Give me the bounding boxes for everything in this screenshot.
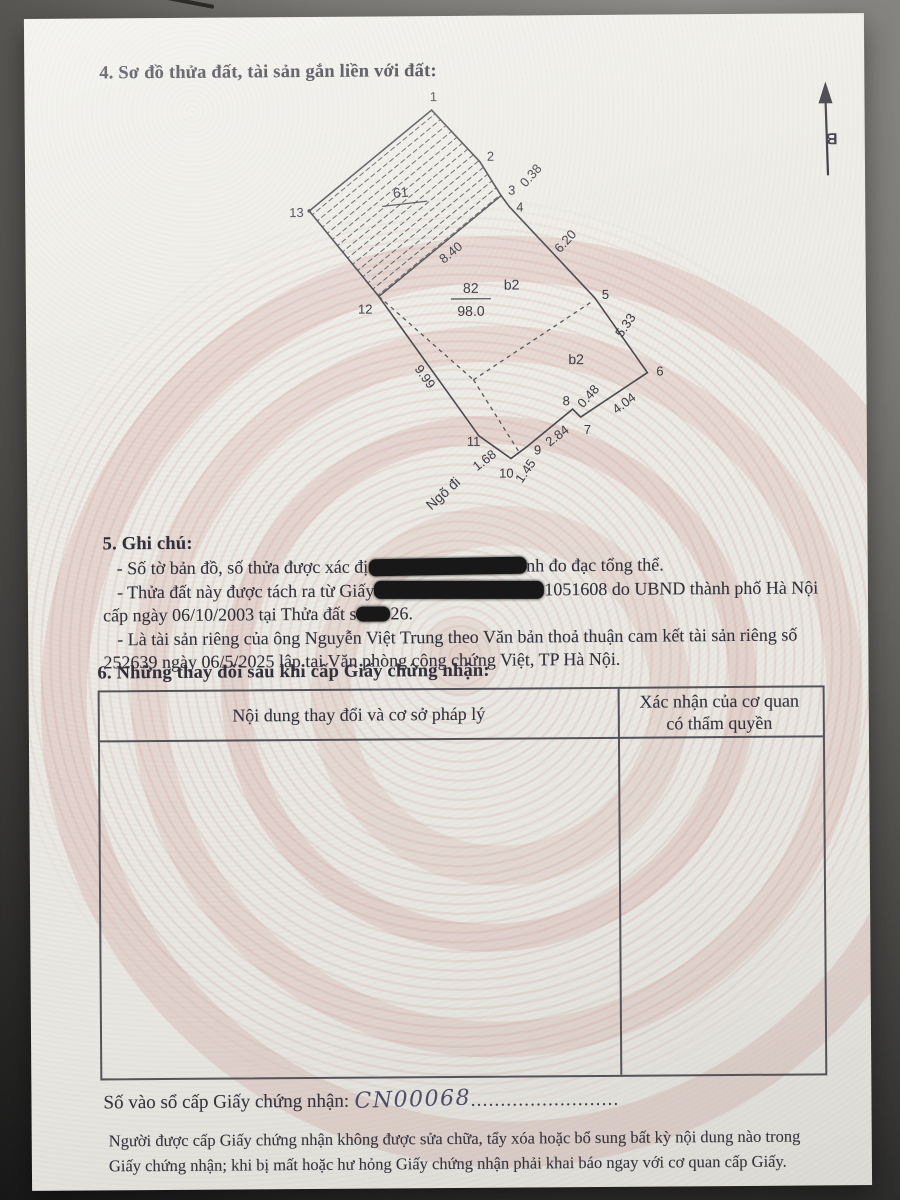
vertex-12: 12 (358, 302, 373, 317)
north-label: B (826, 129, 838, 146)
dashed-line-3 (473, 379, 520, 453)
redaction-mark (374, 581, 544, 599)
plot-61-label: 61 (392, 184, 409, 202)
plot-area-98: 98.0 (457, 303, 485, 319)
table-col1-header: Nội dung thay đổi và cơ sở pháp lý (100, 689, 618, 741)
dotted-leader: ......................... (471, 1089, 620, 1111)
note-line-1: - Số tờ bản đồ, số thửa được xác định đo… (117, 554, 664, 579)
plot-number-82: 82 (463, 280, 479, 296)
vertex-6: 6 (656, 363, 663, 378)
note-line-2-post: 1051608 do UBND thành phố Hà Nội (544, 577, 818, 599)
vertex-2: 2 (487, 149, 494, 164)
dim-5-33: 5.33 (612, 310, 639, 339)
vertex-3: 3 (508, 183, 515, 198)
note-line-1-post: nh đo đạc tổng thể. (526, 554, 664, 575)
note-line-3: cấp ngày 06/10/2003 tại Thửa đất s26. (103, 603, 413, 626)
note-line-1-pre: - Số tờ bản đồ, số thửa được xác đị (117, 557, 369, 579)
dim-9-99: 9.99 (412, 362, 439, 391)
background-cable-shadow (101, 0, 215, 9)
vertex-5: 5 (602, 287, 609, 302)
register-number-row: Số vào sổ cấp Giấy chứng nhận:CN00068...… (103, 1086, 619, 1115)
vertex-13: 13 (289, 205, 304, 220)
vertex-9: 9 (534, 442, 541, 457)
dashed-line-2 (473, 301, 594, 380)
dim-6-20: 6.20 (551, 227, 579, 256)
dim-1-45: 1.45 (512, 456, 539, 485)
dim-2-84: 2.84 (543, 422, 572, 449)
north-arrow-head-icon (818, 81, 832, 103)
section6-title: 6. Những thay đổi sau khi cấp Giấy chứng… (97, 661, 489, 685)
alley-label: Ngõ đi (423, 474, 464, 513)
vertex-8: 8 (563, 393, 570, 408)
b2-lower-label: b2 (568, 351, 584, 367)
vertex-10: 10 (499, 466, 514, 481)
table-column-divider (618, 689, 623, 1075)
dim-4-04: 4.04 (609, 390, 638, 417)
redaction-mark (356, 606, 390, 621)
section4-title: 4. Sơ đồ thửa đất, tài sản gắn liền với … (99, 61, 437, 84)
dim-1-68: 1.68 (470, 447, 499, 474)
certificate-page: 4. Sơ đồ thửa đất, tài sản gắn liền với … (24, 13, 872, 1191)
vertex-7: 7 (584, 422, 591, 437)
changes-table: Nội dung thay đổi và cơ sở pháp lý Xác n… (98, 685, 828, 1080)
table-col2-header-line1: Xác nhận của cơ quan (639, 690, 799, 713)
section5-title: 5. Ghi chú: (103, 534, 193, 556)
north-arrow: B (786, 75, 857, 195)
note-line-3-pre: cấp ngày 06/10/2003 tại Thửa đất s (103, 604, 357, 626)
vertex-13-dot (307, 209, 311, 213)
register-number-handwritten: CN00068 (354, 1086, 471, 1114)
b2-upper-label: b2 (504, 276, 520, 292)
table-col2-header: Xác nhận của cơ quan có thẩm quyền (618, 687, 821, 736)
table-col2-header-line2: có thẩm quyền (666, 712, 772, 735)
register-label: Số vào sổ cấp Giấy chứng nhận: (103, 1091, 349, 1114)
note-line-3-post: 26. (390, 603, 413, 623)
note-line-2-pre: - Thửa đất này được tách ra từ Giấy (117, 581, 375, 603)
redaction-mark (368, 557, 526, 577)
vertex-4: 4 (516, 199, 523, 214)
vertex-11: 11 (467, 434, 481, 449)
dim-0-38: 0.38 (517, 161, 545, 190)
parcel-diagram: 1 2 3 4 5 6 7 8 9 10 11 12 13 0.38 6.20 … (286, 81, 689, 521)
vertex-1: 1 (430, 89, 437, 104)
photo-of-land-certificate-page: { "document": { "section4": { "title": "… (0, 0, 900, 1200)
